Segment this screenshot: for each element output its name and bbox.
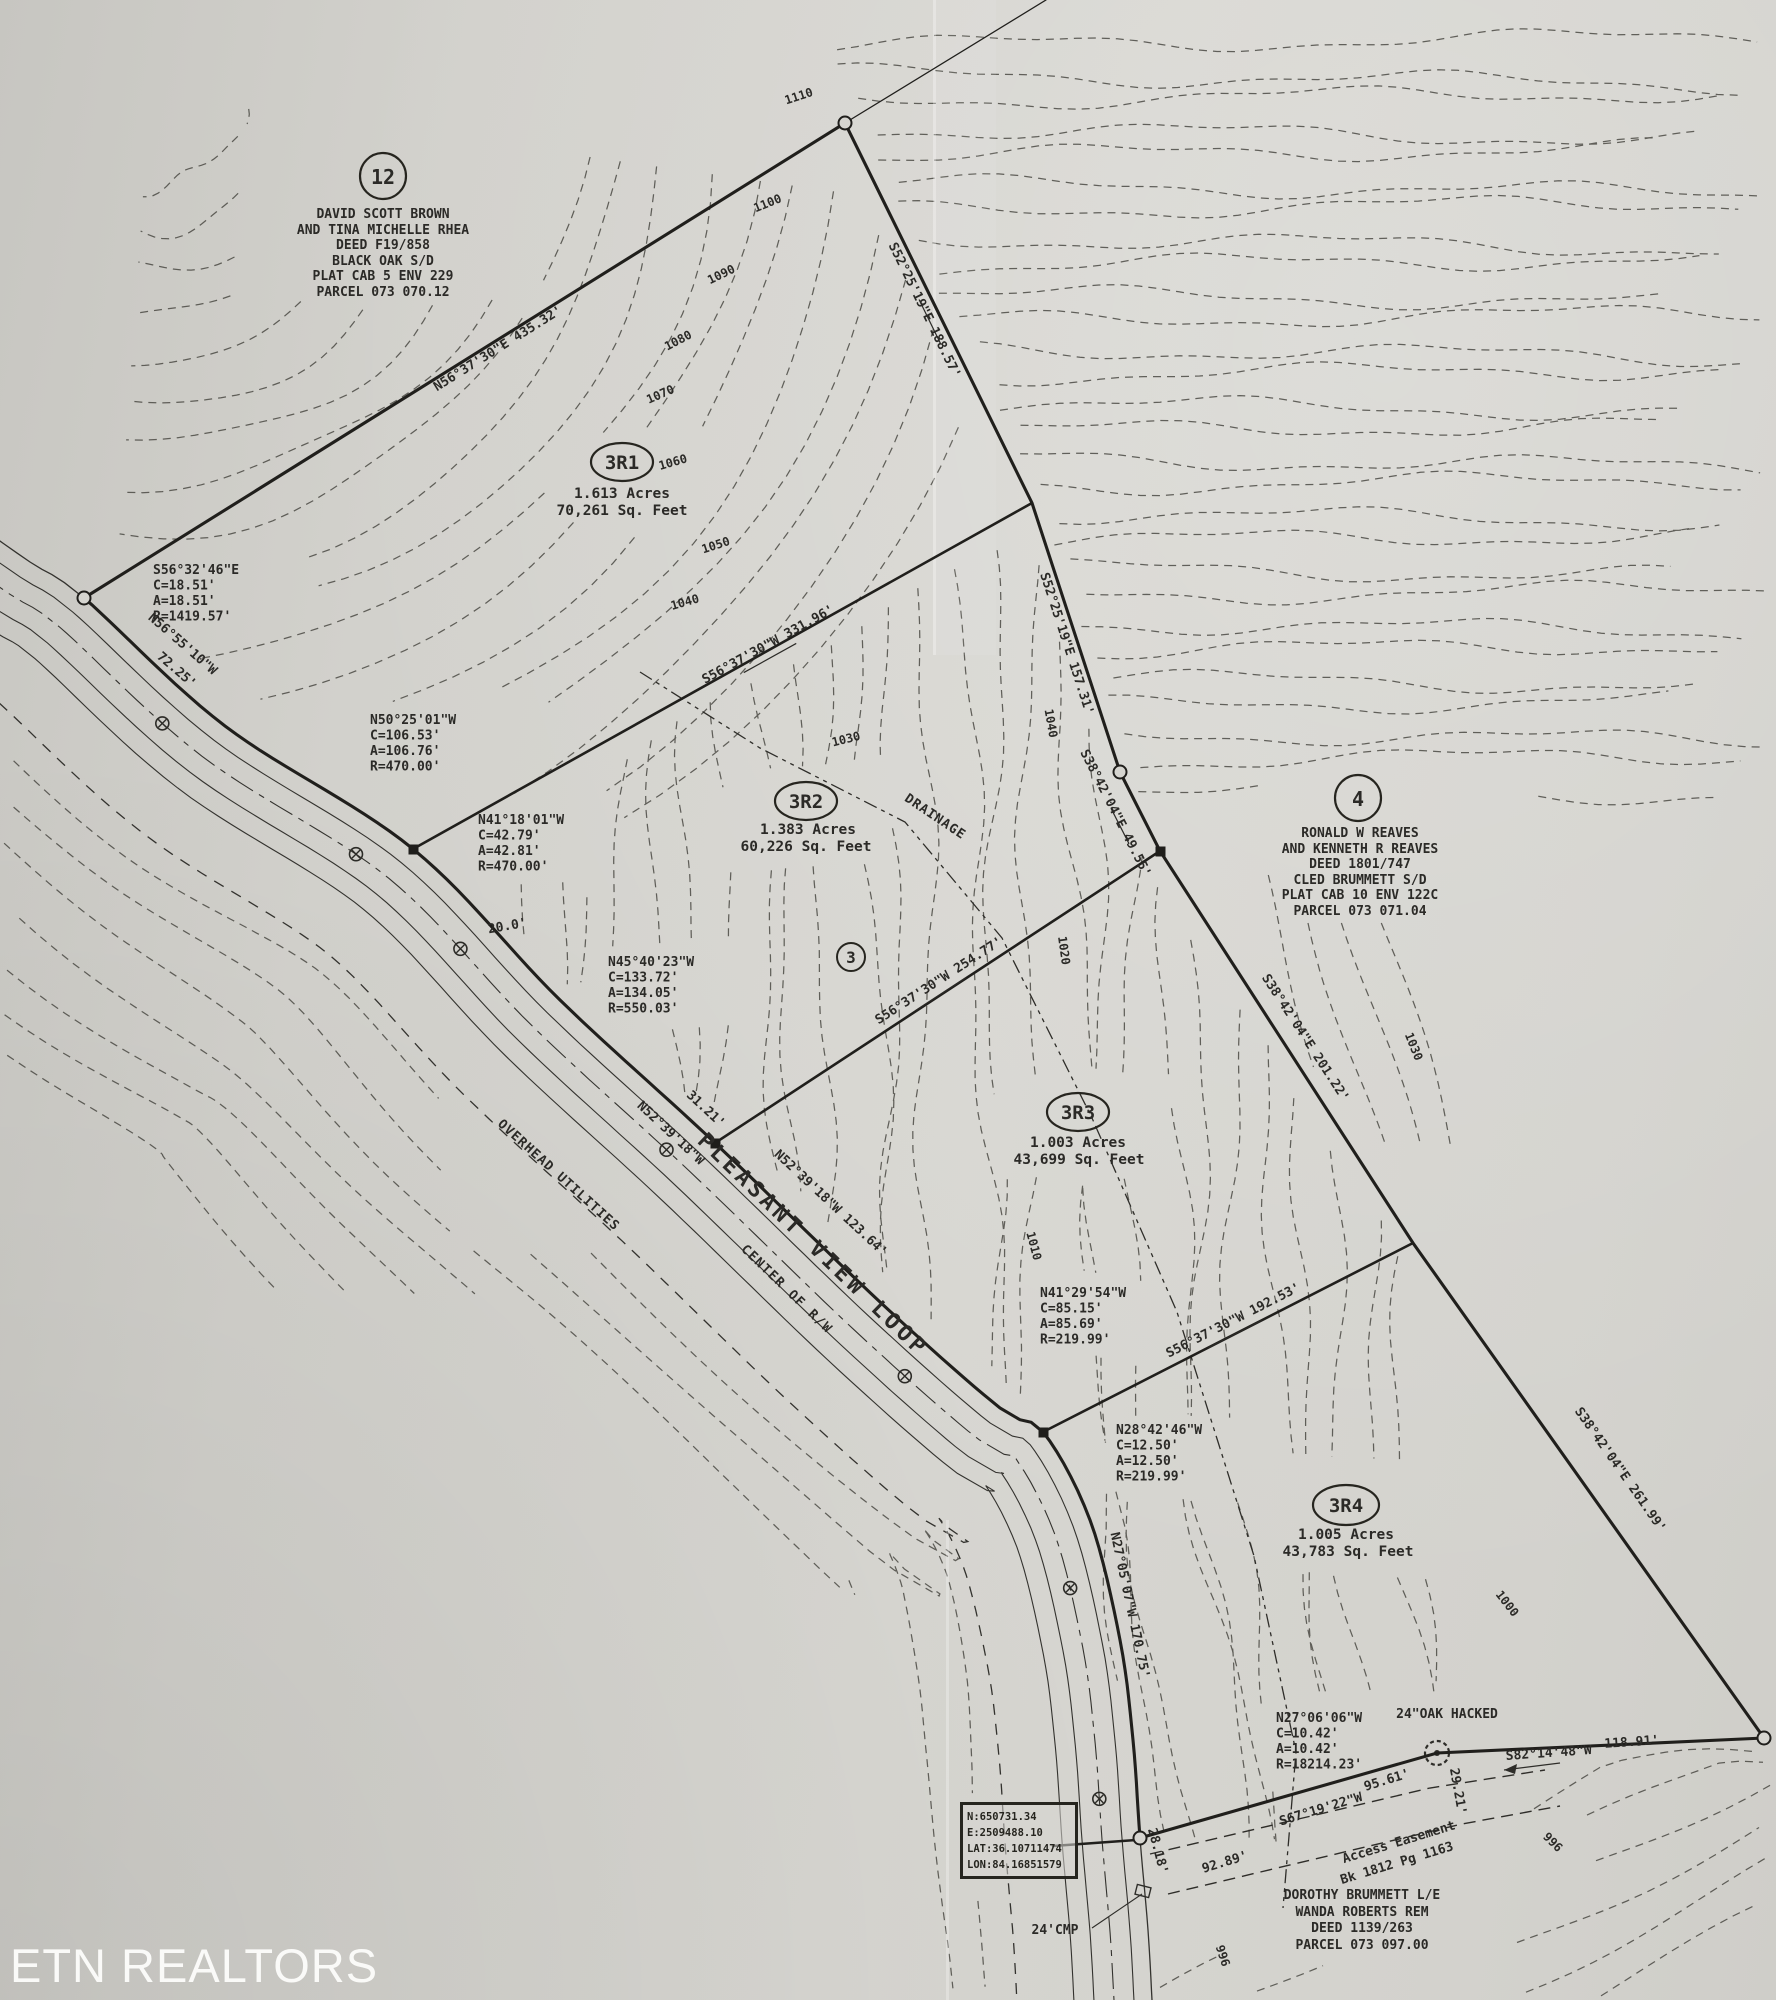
- contour-line: [703, 186, 793, 427]
- curve-data-line: N41°29'54"W: [1040, 1286, 1126, 1301]
- corner-monument: [1156, 847, 1165, 856]
- contour-line: [7, 970, 414, 1293]
- coordinate-longitude: LON:84.16851579: [967, 1857, 1073, 1873]
- contour-line: [878, 124, 1698, 144]
- lot-area-sqft: 43,699 Sq. Feet: [1014, 1152, 1145, 1168]
- contour-line: [1538, 796, 1718, 805]
- contour-elevation-label: 1060: [657, 451, 689, 472]
- contour-line: [899, 174, 1759, 199]
- contour-line: [1426, 1579, 1437, 1681]
- contour-line: [1113, 669, 1693, 693]
- contour-elevation-label: 1100: [751, 191, 783, 215]
- contour-line: [1124, 730, 1764, 747]
- corner-monument: [1114, 766, 1127, 779]
- contour-line: [1238, 1503, 1262, 1707]
- contour-line: [581, 897, 587, 982]
- contour-line: [544, 157, 591, 280]
- contour-elevation-label: 1070: [644, 382, 676, 407]
- curve-data-block: S56°32'46"EC=18.51'A=18.51'R=1419.57': [153, 563, 239, 625]
- contour-line: [980, 342, 1740, 367]
- curve-data-line: C=18.51': [153, 579, 216, 594]
- contour-line: [4, 843, 450, 1231]
- contour-line: [713, 1025, 729, 1110]
- curve-data-line: A=10.42': [1276, 1742, 1339, 1757]
- contour-line: [135, 296, 231, 314]
- contour-line: [1308, 923, 1386, 1147]
- contour-line: [563, 882, 568, 984]
- contour-line: [710, 702, 723, 787]
- contour-line: [5, 1015, 348, 1294]
- contour-line: [1108, 691, 1668, 714]
- contour-line: [7, 1055, 276, 1289]
- contour-line: [14, 807, 441, 1170]
- owner-line: RONALD W REAVES: [1210, 826, 1510, 842]
- bearing-distance-label: 29.21': [1446, 1767, 1469, 1816]
- curve-data-line: C=42.79': [478, 829, 541, 844]
- contour-line: [1000, 362, 1720, 386]
- contour-line: [1020, 1177, 1037, 1398]
- contour-line: [1397, 1578, 1434, 1697]
- lot-area-sqft: 70,261 Sq. Feet: [557, 503, 688, 519]
- contour-line: [1257, 1966, 1323, 1991]
- lot-area-acres: 1.613 Acres: [574, 486, 670, 502]
- contour-line: [1601, 1905, 1755, 1996]
- contour-elevation-label: 1040: [1042, 708, 1061, 739]
- curve-data-line: N28°42'46"W: [1116, 1423, 1202, 1438]
- access-easement-line: [1150, 1770, 1545, 1854]
- coordinate-latitude: LAT:36.10711474: [967, 1841, 1073, 1857]
- owner-line: DOROTHY BRUMMETT L/E: [1212, 1888, 1512, 1905]
- corner-monument: [1758, 1732, 1771, 1745]
- lot-area-acres: 1.383 Acres: [760, 822, 856, 838]
- contour-line: [1172, 1108, 1195, 1414]
- utility-pole-icon: [1064, 1582, 1077, 1595]
- contour-elevation-label: 1110: [783, 85, 815, 107]
- plat-sheet: 3R1 3R2 3R3 3R4 3 12 4 1.613 Acres 70,26…: [0, 0, 1776, 2000]
- contour-line: [675, 721, 692, 942]
- curve-data-line: C=133.72': [608, 971, 678, 986]
- owner-line: DEED F19/858: [233, 238, 533, 254]
- curve-data-line: C=106.53': [370, 729, 440, 744]
- contour-elevation-label: 1030: [1402, 1030, 1426, 1062]
- contour-line: [1080, 1186, 1085, 1271]
- contour-line: [1059, 507, 1719, 531]
- owner-line: PLAT CAB 10 ENV 122C: [1210, 888, 1510, 904]
- bearing-distance-label: N52°39'18"W 123.64': [771, 1147, 890, 1259]
- adjoiner-number-4: 4: [1352, 787, 1364, 811]
- contour-line: [1309, 1572, 1320, 1691]
- contour-line: [393, 537, 635, 701]
- bearing-distance-label: 24"OAK HACKED: [1396, 1707, 1498, 1722]
- adjoiner-block-brummett: DOROTHY BRUMMETT L/E WANDA ROBERTS REM D…: [1212, 1888, 1512, 1954]
- lot-area-acres: 1.003 Acres: [1030, 1135, 1126, 1151]
- contour-line: [751, 683, 771, 768]
- contour-line: [696, 1027, 701, 1095]
- corner-monument: [78, 592, 91, 605]
- curve-data-block: N28°42'46"WC=12.50'A=12.50'R=219.99': [1116, 1423, 1202, 1485]
- bearing-distance-label: 118.91': [1604, 1733, 1660, 1752]
- curve-data-line: R=1419.57': [153, 610, 231, 625]
- contour-elevation-label: 1010: [1023, 1230, 1044, 1262]
- curve-data-line: R=550.03': [608, 1002, 678, 1017]
- adjoiner-block-12: DAVID SCOTT BROWN AND TINA MICHELLE RHEA…: [233, 207, 533, 300]
- curve-data-block: N41°29'54"WC=85.15'A=85.69'R=219.99': [1040, 1286, 1126, 1348]
- contour-line: [939, 253, 1699, 274]
- curve-data-line: C=10.42': [1276, 1727, 1339, 1742]
- contour-line: [898, 196, 1738, 218]
- cmp-leader-line: [1092, 1894, 1142, 1928]
- contour-line: [1000, 396, 1680, 421]
- bearing-distance-label: S56°37'30"W 192.53': [1164, 1280, 1303, 1361]
- bearing-distance-label: S56°37'30"W 331.96': [700, 602, 837, 687]
- contour-line: [1097, 640, 1717, 659]
- contour-line: [1526, 1857, 1768, 1993]
- curve-data-line: A=106.76': [370, 744, 440, 759]
- contour-elevation-label: 1020: [1055, 935, 1073, 966]
- owner-line: AND KENNETH R REAVES: [1210, 842, 1510, 858]
- curve-data-line: A=85.69': [1040, 1317, 1103, 1332]
- contour-line: [129, 310, 363, 403]
- contour-line: [780, 868, 801, 1191]
- owner-line: WANDA ROBERTS REM: [1212, 1905, 1512, 1922]
- bearing-distance-label: S56°37'30"W 254.77': [873, 934, 1006, 1028]
- dimension-arrow: [1504, 1764, 1517, 1774]
- contour-line: [1390, 1256, 1400, 1460]
- contour-line: [992, 1179, 1008, 1366]
- contour-line: [1596, 1784, 1772, 1861]
- bearing-distance-label: S38°42'04"E 201.22': [1258, 972, 1352, 1105]
- contour-line: [978, 1901, 985, 1987]
- bearing-distance-label: S82°14'48"W: [1505, 1743, 1592, 1764]
- contour-line: [813, 866, 837, 1223]
- contour-line: [1021, 418, 1661, 435]
- corner-monument: [1039, 1428, 1048, 1437]
- contour-line: [126, 305, 432, 440]
- plat-drawing: 3R1 3R2 3R3 3R4 3 12 4 1.613 Acres 70,26…: [0, 0, 1776, 2000]
- curve-data-line: R=470.00': [478, 860, 548, 875]
- contour-elevation-label: 1080: [662, 328, 694, 354]
- contour-line: [1054, 528, 1694, 545]
- curve-data-line: R=18214.23': [1276, 1758, 1362, 1773]
- owner-line: PARCEL 073 070.12: [233, 285, 533, 301]
- paper-crease: [946, 1520, 949, 2000]
- contour-line: [939, 285, 1659, 310]
- corner-monument: [409, 845, 418, 854]
- drainage-label: DRAINAGE: [901, 791, 968, 843]
- curve-data-line: C=85.15': [1040, 1302, 1103, 1317]
- contour-line: [1334, 1576, 1372, 1695]
- contour-line: [880, 607, 888, 760]
- contour-line: [1124, 1179, 1141, 1281]
- bearing-distance-label: 20.0': [487, 916, 528, 938]
- bearing-distance-label: 31.21': [683, 1088, 728, 1131]
- overhead-utilities-label: OVERHEAD UTILITIES: [494, 1117, 622, 1234]
- contour-line: [1261, 1045, 1293, 1453]
- lot-area-sqft: 43,783 Sq. Feet: [1283, 1544, 1414, 1560]
- contour-line: [1330, 1151, 1347, 1457]
- owner-line: BLACK OAK S/D: [233, 254, 533, 270]
- lot-id-3r1: 3R1: [605, 452, 639, 474]
- contour-line: [1183, 1499, 1274, 1839]
- curve-data-line: A=12.50': [1116, 1454, 1179, 1469]
- utility-pole-icon: [156, 717, 169, 730]
- contour-line: [531, 1254, 953, 1988]
- contour-line: [260, 522, 573, 699]
- coordinate-easting: E:2509488.10: [967, 1825, 1073, 1841]
- contour-line: [1303, 1574, 1326, 1693]
- contour-line: [1289, 1098, 1310, 1455]
- contour-line: [19, 918, 475, 1294]
- culvert-symbol: [1135, 1884, 1151, 1897]
- contour-line: [1140, 750, 1740, 768]
- contour-line: [474, 1251, 840, 1587]
- bearing-distance-label: S52°25'19"E 157.31': [1036, 571, 1096, 717]
- bearing-distance-label: S38°42'04"E 261.99': [1571, 1405, 1669, 1535]
- contour-line: [959, 306, 1759, 327]
- curve-data-line: R=219.99': [1040, 1333, 1110, 1348]
- curve-data-line: N50°25'01"W: [370, 713, 456, 728]
- contour-line: [1015, 565, 1040, 1075]
- contour-elevation-label: 1040: [669, 591, 701, 612]
- contour-line: [143, 136, 238, 197]
- lot-id-3: 3: [846, 948, 856, 967]
- curve-data-line: N45°40'23"W: [608, 955, 694, 970]
- lot-area-acres: 1.005 Acres: [1298, 1527, 1394, 1543]
- contour-elevation-label: 1030: [830, 729, 861, 750]
- owner-line: AND TINA MICHELLE RHEA: [233, 223, 533, 239]
- overhead-utilities-line: [0, 691, 1017, 2000]
- map-labels: N56°37'30"E 435.32'S52°25'19"E 188.57'S5…: [145, 85, 1669, 1968]
- contour-line: [864, 864, 893, 1272]
- utility-pole-icon: [898, 1370, 911, 1383]
- contour-elevation-label: 1090: [705, 262, 737, 287]
- coordinate-northing: N:650731.34: [967, 1809, 1073, 1825]
- contour-line: [1123, 856, 1143, 1077]
- lot-id-3r3: 3R3: [1061, 1102, 1095, 1124]
- contour-line: [1020, 453, 1760, 473]
- drainage-line: [640, 672, 1296, 1908]
- corner-monument: [1134, 1832, 1147, 1845]
- contour-line: [1138, 786, 1258, 793]
- curve-data-line: A=134.05': [608, 986, 678, 1001]
- contour-line: [646, 740, 660, 944]
- contour-line: [1155, 887, 1169, 1074]
- contour-line: [1587, 1761, 1763, 1815]
- contour-line: [1081, 619, 1741, 639]
- contour-line: [120, 318, 523, 539]
- contour-line: [247, 109, 249, 124]
- curve-data-block: N50°25'01"WC=106.53'A=106.76'R=470.00': [370, 713, 456, 775]
- contour-line: [794, 664, 804, 766]
- curve-data-line: R=470.00': [370, 760, 440, 775]
- contour-line: [763, 870, 779, 1176]
- curve-data-block: N41°18'01"WC=42.79'A=42.81'R=470.00': [478, 813, 564, 875]
- contour-line: [131, 302, 301, 366]
- realtor-watermark: ETN REALTORS: [10, 1938, 378, 1993]
- utility-pole-icon: [454, 942, 467, 955]
- curve-data-line: R=219.99': [1116, 1470, 1186, 1485]
- contour-elevation-label: 996: [1540, 1830, 1565, 1855]
- lot-area-sqft: 60,226 Sq. Feet: [741, 839, 872, 855]
- bearing-distance-label: 24'CMP: [1032, 1923, 1079, 1938]
- curve-data-line: N27°06'06"W: [1276, 1711, 1362, 1726]
- owner-line: DEED 1801/747: [1210, 857, 1510, 873]
- contour-line: [1070, 559, 1670, 582]
- contour-elevation-label: 1000: [1493, 1588, 1522, 1619]
- contour-line: [1083, 1188, 1096, 1273]
- contour-line: [1191, 1501, 1249, 1841]
- adjoiner-block-4: RONALD W REAVES AND KENNETH R REAVES DEE…: [1210, 826, 1510, 919]
- contour-line: [672, 1029, 685, 1097]
- owner-line: CLED BRUMMETT S/D: [1210, 873, 1510, 889]
- curve-data-block: N27°06'06"WC=10.42'A=10.42'R=18214.23': [1276, 1711, 1362, 1773]
- contour-line: [196, 493, 545, 659]
- curve-data-block: N45°40'23"WC=133.72'A=134.05'R=550.03': [608, 955, 694, 1017]
- road-edge-line: [0, 558, 1134, 2000]
- contour-line: [913, 588, 939, 1319]
- bearing-distance-label: 28.18': [1144, 1826, 1171, 1875]
- lot-id-3r2: 3R2: [789, 791, 823, 813]
- contour-line: [1220, 1010, 1241, 1418]
- corner-monument: [839, 117, 852, 130]
- curve-data-line: A=18.51': [153, 594, 216, 609]
- contour-line: [549, 235, 879, 702]
- contour-line: [919, 234, 1719, 255]
- contour-line: [613, 759, 628, 946]
- bearing-distance-label: 92.89': [1200, 1849, 1249, 1877]
- contour-line: [14, 761, 439, 1099]
- contour-line: [728, 872, 730, 940]
- owner-line: PARCEL 073 097.00: [1212, 1938, 1512, 1955]
- owner-line: DAVID SCOTT BROWN: [233, 207, 533, 223]
- contour-line: [1086, 580, 1766, 605]
- bearing-distance-label: N56°37'30"E 435.32': [431, 303, 565, 395]
- curve-data-line: C=12.50': [1116, 1439, 1179, 1454]
- utility-pole-icon: [350, 848, 363, 861]
- contour-line: [1041, 471, 1741, 496]
- lot-id-3r4: 3R4: [1329, 1495, 1363, 1517]
- owner-line: PLAT CAB 5 ENV 229: [233, 269, 533, 285]
- contour-line: [123, 300, 493, 493]
- curve-data-line: A=42.81': [478, 844, 541, 859]
- contour-line: [138, 257, 234, 270]
- contour-line: [141, 193, 239, 239]
- contour-line: [849, 1581, 855, 1595]
- road-name-label: PLEASANT VIEW LOOP: [692, 1129, 933, 1363]
- survey-monuments: [78, 117, 1771, 1845]
- contour-line: [1368, 1221, 1381, 1459]
- curve-data-line: S56°32'46"E: [153, 563, 239, 578]
- owner-line: DEED 1139/263: [1212, 1921, 1512, 1938]
- adjoiner-number-12: 12: [371, 165, 395, 189]
- curve-data-line: N41°18'01"W: [478, 813, 564, 828]
- owner-line: PARCEL 073 071.04: [1210, 904, 1510, 920]
- utility-pole-icon: [660, 1143, 673, 1156]
- coordinate-box: N:650731.34 E:2509488.10 LAT:36.10711474…: [960, 1802, 1078, 1879]
- contour-line: [880, 828, 902, 1270]
